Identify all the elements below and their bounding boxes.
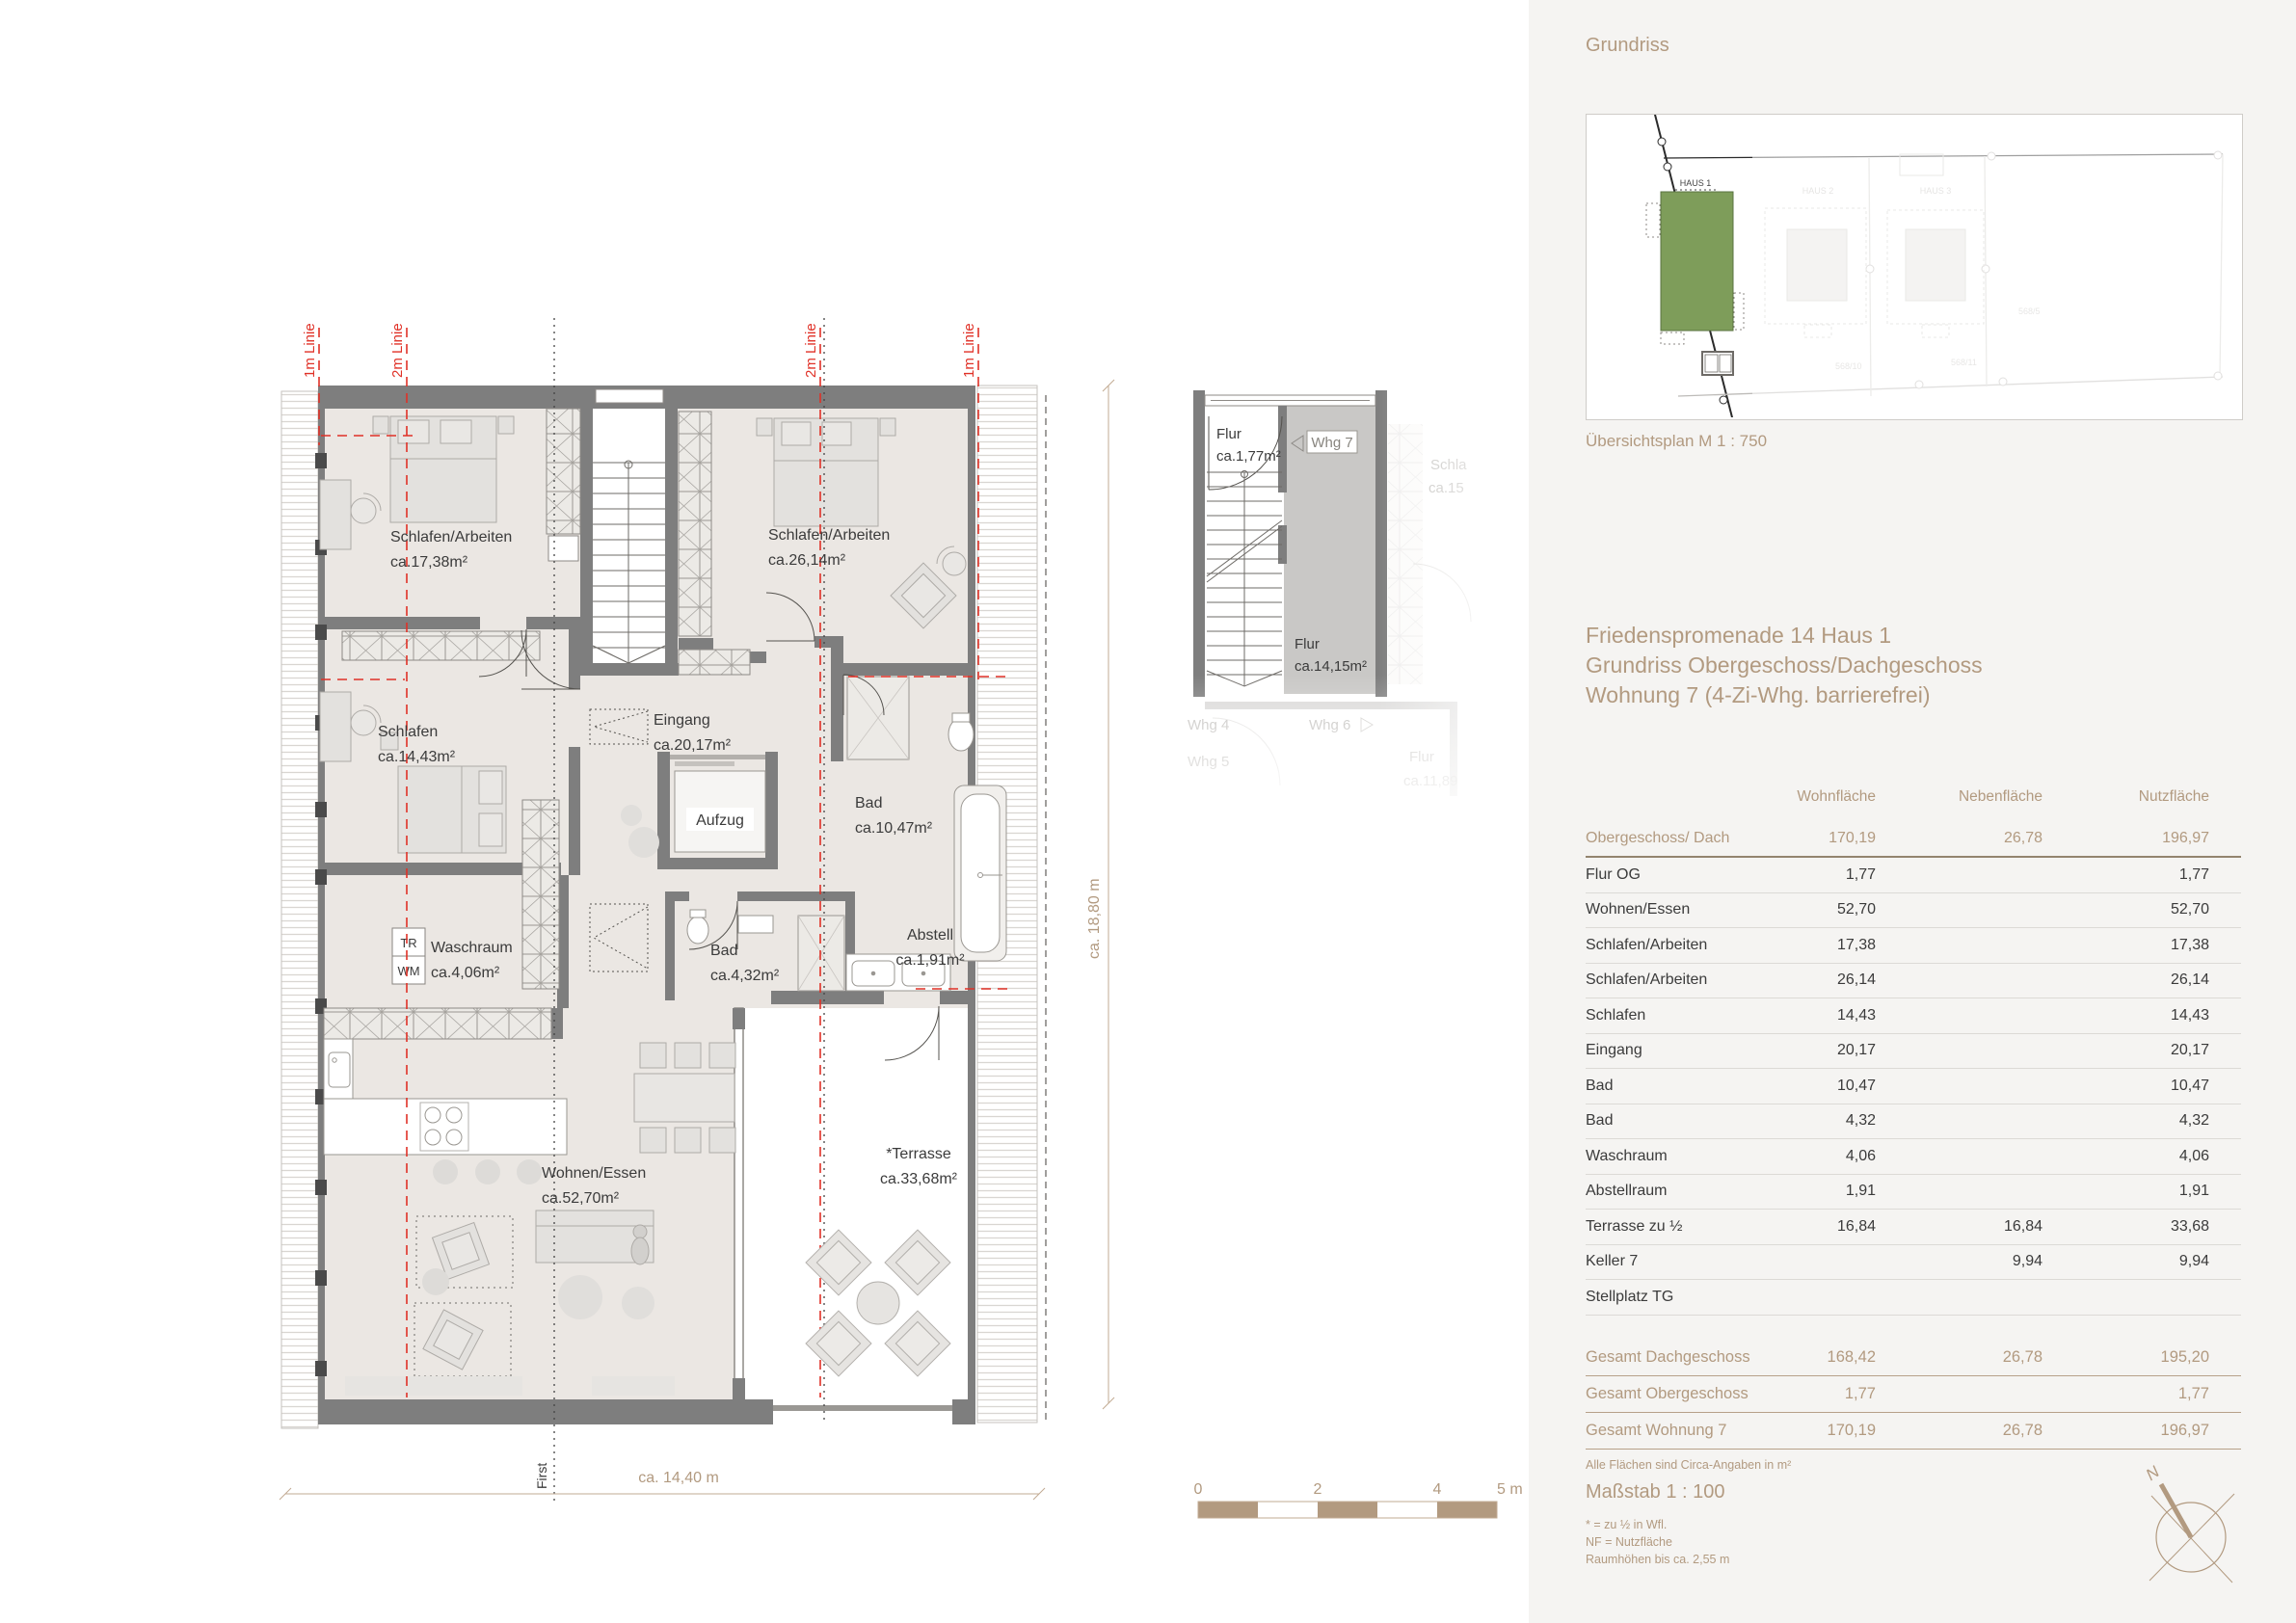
- room-label: *Terrasse: [886, 1146, 951, 1162]
- cell-nutz: 14,43: [2042, 1007, 2209, 1024]
- room-area: ca.4,32m²: [710, 968, 780, 984]
- cell-wohn: 17,38: [1813, 937, 1876, 954]
- inset-whg7-label: Whg 7: [1311, 435, 1352, 451]
- scale-tick-4: 4: [1433, 1481, 1442, 1498]
- note-line: Raumhöhen bis ca. 2,55 m: [1586, 1551, 1729, 1568]
- scale-tick-0: 0: [1194, 1481, 1203, 1498]
- cell-nutz: 52,70: [2042, 901, 2209, 918]
- scale-tick-5: 5 m: [1497, 1481, 1523, 1498]
- haus1-footprint: [1661, 192, 1733, 331]
- scale-heading: Maßstab 1 : 100: [1586, 1481, 1725, 1503]
- room-area: ca.1,91m²: [895, 952, 965, 969]
- cell-label: Bad: [1586, 1078, 1813, 1095]
- room-area: ca.14,43m²: [378, 749, 456, 765]
- cell-wohn: 1,77: [1813, 866, 1876, 884]
- cell-wohn: 1,91: [1813, 1183, 1876, 1200]
- table-total-row: Gesamt Obergeschoss1,771,77: [1586, 1376, 2241, 1413]
- cell-label: Eingang: [1586, 1042, 1813, 1059]
- room-label: Waschraum: [431, 940, 513, 956]
- cell-label: Schlafen/Arbeiten: [1586, 937, 1813, 954]
- notes-block: * = zu ½ in Wfl. NF = Nutzfläche Raumhöh…: [1586, 1516, 1729, 1568]
- cell-wohn: 170,19: [1813, 1422, 1876, 1440]
- cell-label: Gesamt Obergeschoss: [1586, 1385, 1813, 1403]
- cell-nutz: 1,77: [2042, 866, 2209, 884]
- cell-label: Keller 7: [1586, 1253, 1813, 1270]
- room-area: ca.10,47m²: [855, 820, 933, 837]
- page: TR WM: [0, 0, 2296, 1623]
- cell-label: Wohnen/Essen: [1586, 901, 1813, 918]
- room-label: Schlafen/Arbeiten: [390, 529, 512, 545]
- compass-north-label: N: [2143, 1462, 2164, 1484]
- cell-neben: 26,78: [1876, 830, 2042, 847]
- guide-label-1m-left: 1m Linie: [302, 323, 318, 378]
- cell-label: Bad: [1586, 1112, 1813, 1130]
- table-row: Schlafen14,4314,43: [1586, 998, 2241, 1034]
- cell-wohn: 52,70: [1813, 901, 1876, 918]
- area-table: Wohnfläche Nebenfläche Nutzfläche Oberge…: [1586, 788, 2241, 1472]
- cell-wohn: 26,14: [1813, 971, 1876, 989]
- compass-icon: N: [2119, 1446, 2263, 1610]
- cell-label: Stellplatz TG: [1586, 1289, 1813, 1306]
- room-label: Eingang: [654, 712, 710, 729]
- cell-nutz: 10,47: [2042, 1078, 2209, 1095]
- table-row: Wohnen/Essen52,7052,70: [1586, 893, 2241, 929]
- cell-label: Flur OG: [1586, 866, 1813, 884]
- ridge-label: First: [534, 1463, 549, 1489]
- table-row: Schlafen/Arbeiten17,3817,38: [1586, 928, 2241, 964]
- cell-wohn: 14,43: [1813, 1007, 1876, 1024]
- table-total-row: Gesamt Wohnung 7170,1926,78196,97: [1586, 1413, 2241, 1450]
- note-line: * = zu ½ in Wfl.: [1586, 1516, 1729, 1533]
- dimension-height: [1103, 380, 1114, 1409]
- haus1-annex-outline3: [1734, 293, 1744, 330]
- column-header-nutzflaeche: Nutzfläche: [2042, 788, 2209, 821]
- room-area: ca.33,68m²: [880, 1171, 958, 1187]
- table-header: Wohnfläche Nebenfläche Nutzfläche: [1586, 788, 2241, 821]
- inset-flur-area: ca.14,15m²: [1295, 658, 1367, 675]
- haus1-annex-outline2: [1661, 333, 1684, 344]
- room-area: ca.17,38m²: [390, 554, 468, 571]
- cell-wohn: 4,32: [1813, 1112, 1876, 1130]
- cell-label: Terrasse zu ½: [1586, 1218, 1813, 1236]
- cell-label: Obergeschoss/ Dach: [1586, 830, 1813, 847]
- floor-plan: TR WM: [0, 0, 1529, 1623]
- cell-nutz: 4,06: [2042, 1148, 2209, 1165]
- cell-nutz: 17,38: [2042, 937, 2209, 954]
- panel-heading: Grundriss: [1586, 35, 1669, 57]
- column-header-wohnflaeche: Wohnfläche: [1586, 788, 1876, 821]
- room-area: ca.26,14m²: [768, 552, 846, 569]
- cell-wohn: 170,19: [1813, 830, 1876, 847]
- title-line: Grundriss Obergeschoss/Dachgeschoss: [1586, 651, 1983, 680]
- washroom-appliances: TR WM: [392, 928, 425, 984]
- table-total-row: Gesamt Dachgeschoss168,4226,78195,20: [1586, 1340, 2241, 1376]
- room-label: Schlafen: [378, 724, 438, 740]
- scale-tick-2: 2: [1314, 1481, 1322, 1498]
- cell-wohn: 1,77: [1813, 1385, 1876, 1403]
- cell-nutz: 1,91: [2042, 1183, 2209, 1200]
- site-plan-fade: [1752, 115, 2240, 417]
- cell-wohn: 168,42: [1813, 1348, 1876, 1367]
- site-plan-caption: Übersichtsplan M 1 : 750: [1586, 432, 1767, 451]
- haus1-annex-outline: [1646, 203, 1660, 237]
- table-row: Terrasse zu ½16,8416,8433,68: [1586, 1210, 2241, 1245]
- table-row: Waschraum4,064,06: [1586, 1139, 2241, 1175]
- room-area: ca.4,06m²: [431, 965, 500, 981]
- title-line: Wohnung 7 (4-Zi-Whg. barrierefrei): [1586, 680, 1983, 710]
- cell-label: Abstellraum: [1586, 1183, 1813, 1200]
- cell-label: Waschraum: [1586, 1148, 1813, 1165]
- table-row: Stellplatz TG: [1586, 1280, 2241, 1316]
- note-line: NF = Nutzfläche: [1586, 1533, 1729, 1551]
- inset-flur-og-label: Flur: [1216, 426, 1241, 442]
- cell-label: Schlafen: [1586, 1007, 1813, 1024]
- table-row: Bad4,324,32: [1586, 1104, 2241, 1140]
- cell-label: Schlafen/Arbeiten: [1586, 971, 1813, 989]
- table-spacer: [1586, 1316, 2241, 1340]
- cell-nutz: 196,97: [2042, 830, 2209, 847]
- table-body: Obergeschoss/ Dach170,1926,78196,97Flur …: [1586, 821, 2241, 1450]
- room-label: Schlafen/Arbeiten: [768, 527, 890, 544]
- washer-label: WM: [397, 964, 419, 978]
- cell-wohn: 10,47: [1813, 1078, 1876, 1095]
- cell-nutz: 9,94: [2042, 1253, 2209, 1270]
- cell-neben: 16,84: [1876, 1218, 2042, 1236]
- guide-label-2m-right: 2m Linie: [803, 323, 819, 378]
- info-panel: Grundriss Friedenspromenade: [1529, 0, 2296, 1623]
- cell-nutz: 33,68: [2042, 1218, 2209, 1236]
- cell-nutz: 4,32: [2042, 1112, 2209, 1130]
- cell-nutz: 1,77: [2042, 1385, 2209, 1403]
- dimension-height-label: ca. 18,80 m: [1086, 878, 1103, 959]
- inset-flur-og-area: ca.1,77m²: [1216, 448, 1281, 465]
- garage-entry: [1702, 352, 1733, 375]
- elevator-label: Aufzug: [696, 812, 744, 829]
- scale-bar: 0 2 4 5 m: [1194, 1481, 1523, 1518]
- haus1-label: HAUS 1: [1680, 178, 1712, 188]
- site-plan-drawing: Friedenspromenade HAUS 1 HAUS 2 HA: [1587, 115, 2240, 417]
- table-lead-row: Obergeschoss/ Dach170,1926,78196,97: [1586, 821, 2241, 858]
- table-row: Keller 79,949,94: [1586, 1245, 2241, 1281]
- table-row: Schlafen/Arbeiten26,1426,14: [1586, 964, 2241, 999]
- cell-wohn: 4,06: [1813, 1148, 1876, 1165]
- room-label: Abstell: [907, 927, 953, 944]
- cell-label: Gesamt Dachgeschoss: [1586, 1348, 1813, 1367]
- inset-flur-label: Flur: [1295, 636, 1320, 652]
- cell-neben: 26,78: [1876, 1422, 2042, 1440]
- cell-nutz: 26,14: [2042, 971, 2209, 989]
- guide-label-2m-left: 2m Linie: [389, 323, 406, 378]
- cell-nutz: 195,20: [2042, 1348, 2209, 1367]
- stairwell-inset: Flur ca.1,77m² Whg 7 Flur ca.14,15m² Whg…: [1181, 381, 1529, 810]
- cell-wohn: 20,17: [1813, 1042, 1876, 1059]
- cell-nutz: 196,97: [2042, 1422, 2209, 1440]
- room-label: Bad: [710, 943, 737, 959]
- room-label: Wohnen/Essen: [542, 1165, 646, 1182]
- room-area: ca.20,17m²: [654, 737, 732, 754]
- title-line: Friedenspromenade 14 Haus 1: [1586, 621, 1983, 651]
- height-guide-labels: 1m Linie 2m Linie 2m Linie 1m Linie: [302, 323, 977, 378]
- table-row: Flur OG1,771,77: [1586, 858, 2241, 893]
- cell-wohn: 16,84: [1813, 1218, 1876, 1236]
- column-header-nebenflaeche: Nebenfläche: [1876, 788, 2042, 821]
- room-area: ca.52,70m²: [542, 1190, 620, 1207]
- guide-label-1m-right: 1m Linie: [961, 323, 977, 378]
- dimension-width-label: ca. 14,40 m: [638, 1470, 719, 1486]
- table-row: Bad10,4710,47: [1586, 1069, 2241, 1104]
- title-block: Friedenspromenade 14 Haus 1 Grundriss Ob…: [1586, 621, 1983, 710]
- cell-label: Gesamt Wohnung 7: [1586, 1422, 1813, 1440]
- dryer-label: TR: [400, 936, 416, 950]
- table-row: Eingang20,1720,17: [1586, 1034, 2241, 1070]
- cell-neben: 9,94: [1876, 1253, 2042, 1270]
- dining-set: [634, 1043, 735, 1153]
- site-plan: Friedenspromenade HAUS 1 HAUS 2 HA: [1586, 114, 2243, 420]
- dimension-width: [280, 1488, 1045, 1500]
- table-row: Abstellraum1,911,91: [1586, 1175, 2241, 1211]
- room-label: Bad: [855, 795, 882, 811]
- cell-nutz: 20,17: [2042, 1042, 2209, 1059]
- cell-neben: 26,78: [1876, 1348, 2042, 1367]
